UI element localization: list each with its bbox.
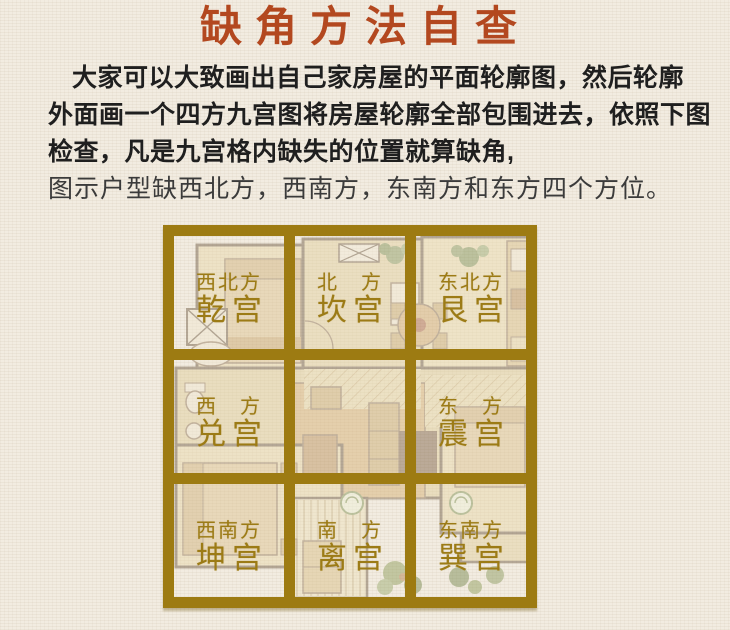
palace-label: 震宫 <box>438 418 510 452</box>
direction-label: 西南方 <box>196 520 262 542</box>
direction-label: 东南方 <box>438 520 504 542</box>
palace-label: 巽宫 <box>438 542 510 576</box>
grid-cell-south: 南 方 离宫 <box>295 484 405 597</box>
grid-cell-northeast: 东北方 艮宫 <box>416 236 526 349</box>
grid-cell-center <box>295 360 405 473</box>
nine-palace-grid: 西北方 乾宫 北 方 坎宫 东北方 艮宫 西 方 兑宫 东 方 震宫 <box>163 225 537 608</box>
palace-label: 兑宫 <box>196 418 268 452</box>
grid-cells: 西北方 乾宫 北 方 坎宫 东北方 艮宫 西 方 兑宫 东 方 震宫 <box>163 225 537 608</box>
intro-line-1: 大家可以大致画出自己家房屋的平面轮廓图，然后轮廓 <box>48 60 698 97</box>
palace-label: 坤宫 <box>196 542 268 576</box>
intro-paragraph: 大家可以大致画出自己家房屋的平面轮廓图，然后轮廓 外面画一个四方九宫图将房屋轮廓… <box>48 60 698 208</box>
grid-cell-west: 西 方 兑宫 <box>174 360 284 473</box>
direction-label: 南 方 <box>317 520 383 542</box>
palace-label: 离宫 <box>317 542 389 576</box>
direction-label: 西北方 <box>196 272 262 294</box>
grid-cell-southeast: 东南方 巽宫 <box>416 484 526 597</box>
grid-cell-northwest: 西北方 乾宫 <box>174 236 284 349</box>
page-title: 缺角方法自查 <box>0 4 730 52</box>
grid-cell-southwest: 西南方 坤宫 <box>174 484 284 597</box>
intro-line-4: 图示户型缺西北方，西南方，东南方和东方四个方位。 <box>48 171 698 208</box>
grid-cell-east: 东 方 震宫 <box>416 360 526 473</box>
palace-label: 艮宫 <box>438 294 510 328</box>
grid-cell-north: 北 方 坎宫 <box>295 236 405 349</box>
infographic-page: 缺角方法自查 大家可以大致画出自己家房屋的平面轮廓图，然后轮廓 外面画一个四方九… <box>0 0 730 630</box>
palace-label: 乾宫 <box>196 294 268 328</box>
palace-label: 坎宫 <box>317 294 389 328</box>
direction-label: 东北方 <box>438 272 504 294</box>
intro-line-2: 外面画一个四方九宫图将房屋轮廓全部包围进去，依照下图 <box>48 97 698 134</box>
direction-label: 北 方 <box>317 272 383 294</box>
direction-label: 东 方 <box>438 396 504 418</box>
direction-label: 西 方 <box>196 396 262 418</box>
intro-line-3: 检查，凡是九宫格内缺失的位置就算缺角, <box>48 134 698 171</box>
